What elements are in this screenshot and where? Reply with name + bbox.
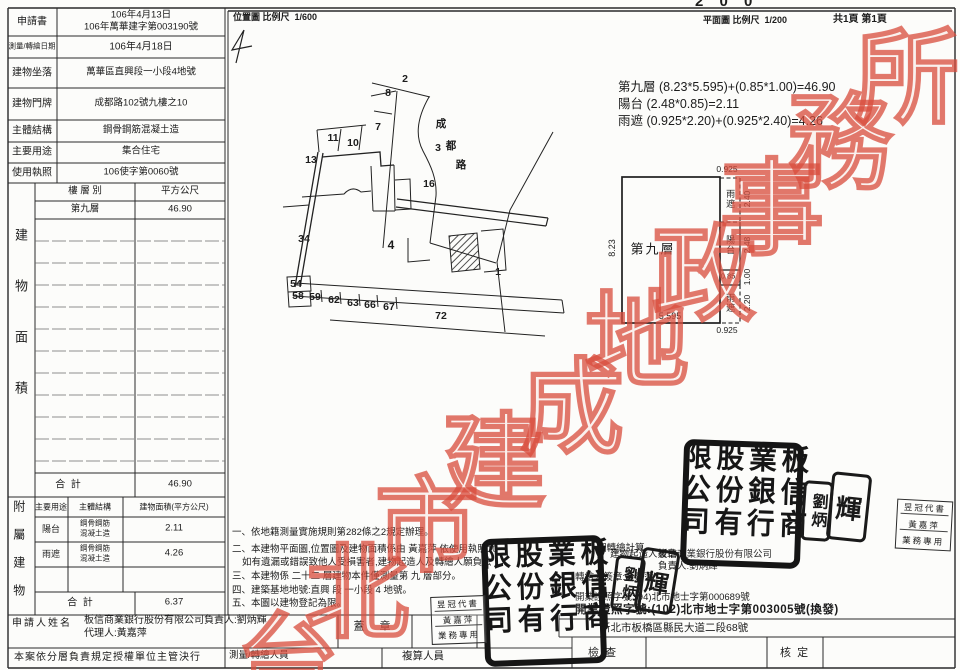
annex-balcony-structure-2: 混凝土造	[80, 530, 110, 539]
map-parcel-label: 2	[402, 73, 408, 85]
annex-canopy-structure-1: 鋼骨鋼筋	[80, 545, 110, 554]
dim-bottom-5595: 5.595	[659, 311, 682, 321]
note-5: 五、本圖以建物登記為限。	[232, 599, 346, 610]
field-label-survey-date: 測量/轉繪日期	[8, 43, 55, 52]
agent-stamp-row3: 業務專用	[899, 535, 947, 548]
applicant-label: 申請人姓名	[12, 618, 72, 630]
floor-9-area: 46.90	[168, 205, 192, 216]
note-3: 三、本建物係 二十二 層建物本件僅測量第 九 層部分。	[232, 572, 461, 583]
use-license: 106使字第0060號	[104, 168, 179, 179]
dim-top-0925: 0.925	[716, 165, 737, 175]
annex-section-side-label: 附屬建物	[11, 500, 25, 612]
field-label-address: 建物門牌	[12, 98, 52, 110]
map-parcel-label: 16	[423, 178, 435, 190]
note-2a: 二、本建物平面圖,位置圖及建物面積係由 黃嘉萍 依使用執照10	[232, 545, 498, 556]
location-map-lines	[232, 30, 564, 336]
map-parcel-label: 7	[375, 121, 381, 133]
canopy-bot-label: 雨遮	[725, 293, 735, 313]
personal-seal-2b: 輝	[826, 471, 873, 543]
authority-statement: 本案依分層負責規定授權單位主管決行	[14, 652, 201, 664]
watermark-char: 成	[520, 323, 624, 474]
field-label-license: 使用執照	[12, 167, 52, 179]
note-4: 四、建築基地地號:直興 段 一小段 4 地號。	[232, 586, 412, 597]
map-parcel-label: 8	[385, 87, 391, 99]
applicant-line2: 代理人:黃嘉萍	[84, 628, 147, 640]
field-label-application: 申請書	[17, 16, 47, 28]
watermark-char: 市	[375, 441, 479, 592]
annex-balcony-area: 2.11	[165, 524, 183, 535]
area-section-side-label: 建物面積	[12, 228, 27, 432]
watermark-char: 事	[720, 124, 824, 275]
annex-col-use: 主要用途	[35, 502, 67, 511]
map-parcel-label: 4	[388, 239, 395, 253]
annex-col-area: 建物面積(平方公尺)	[139, 502, 208, 511]
canopy-bot-dim: 2.20	[743, 295, 753, 312]
floor-plan-title: 平面圖 比例尺 1/200	[703, 15, 787, 25]
annex-balcony: 陽台	[42, 524, 60, 534]
application-date: 106年4月13日	[111, 11, 171, 22]
annex-col-structure: 主體結構	[79, 502, 111, 511]
map-parcel-label: 58	[292, 290, 304, 302]
annex-balcony-structure-1: 鋼骨鋼筋	[80, 520, 110, 529]
office-address: 新北市板橋區縣民大道二段68號	[600, 622, 748, 634]
col-floor: 樓 層 別	[68, 187, 102, 198]
surveyor-label: 測量/轉繪人員	[229, 651, 289, 662]
annex-total-label: 合 計	[67, 597, 93, 609]
map-parcel-label: 都	[446, 140, 457, 152]
applicant-line1: 板信商業銀行股份有限公司負責人:劉炳輝	[84, 615, 267, 627]
dim-085: 0.85	[721, 273, 736, 282]
agent-stamp-row3: 業務專用	[435, 630, 482, 642]
agent-stamp-row2: 黃嘉萍	[435, 614, 482, 627]
map-parcel-label: 72	[435, 310, 447, 322]
map-parcel-label: 10	[347, 137, 359, 149]
calc-balcony: 陽台 (2.48*0.85)=2.11	[618, 97, 739, 111]
field-label-location: 建物坐落	[12, 67, 52, 79]
survey-document-page: 2 0 0 位置圖 比例尺 1/600 平面圖 比例尺 1/200 共1頁 第1…	[0, 0, 960, 670]
canopy-top-dim: 2.40	[743, 191, 753, 208]
map-parcel-label: 成	[436, 118, 447, 130]
agent-stamp-row1: 昱冠代書	[434, 598, 481, 611]
main-structure: 鋼骨鋼筋混凝土造	[103, 126, 179, 137]
location-map-title: 位置圖 比例尺 1/600	[233, 12, 317, 22]
main-use: 集合住宅	[122, 147, 160, 158]
map-parcel-label: 59	[309, 291, 321, 303]
approve-label: 核 定	[780, 647, 808, 660]
floor-9-label: 第九層	[71, 205, 100, 216]
map-parcel-label: 62	[328, 294, 340, 306]
agent-stamp-row1: 昱冠代書	[901, 502, 950, 516]
building-address: 成都路102號九樓之10	[95, 99, 188, 110]
map-parcel-label: 1	[495, 266, 501, 278]
canopy-top-label: 雨遮	[725, 189, 735, 209]
balcony-label: 陽台	[725, 235, 735, 255]
page-info: 共1頁 第1頁	[833, 14, 887, 26]
application-number: 106年萬華建字第003190號	[84, 23, 198, 34]
survey-date: 106年4月18日	[109, 41, 172, 53]
map-parcel-label: 3	[435, 142, 441, 154]
dim-100: 1.00	[743, 269, 753, 286]
top-partial-mark: 2 0 0	[695, 0, 758, 10]
watermark-char: 建	[442, 378, 546, 529]
map-parcel-label: 11	[327, 132, 338, 144]
watermark-char: 地	[585, 256, 689, 407]
agent-stamp-2: 昱冠代書 黃嘉萍 業務專用	[895, 499, 954, 552]
calc-canopy: 雨遮 (0.925*2.20)+(0.925*2.40)=4.26	[618, 114, 823, 128]
field-label-structure: 主體結構	[12, 125, 52, 137]
company-seal-1: 板信商業銀行股份有限公司	[481, 535, 607, 667]
dim-left-823: 8.23	[607, 239, 617, 257]
col-sqm: 平方公尺	[161, 187, 199, 198]
map-parcel-label: 67	[383, 301, 395, 313]
annex-canopy-area: 4.26	[165, 549, 184, 560]
calc-floor9: 第九層 (8.23*5.595)+(0.85*1.00)=46.90	[618, 80, 836, 94]
dim-bot-0925: 0.925	[716, 326, 737, 336]
agent-stamp-row2: 黃嘉萍	[900, 518, 949, 532]
floor-plan-room-label: 第九層	[630, 243, 675, 258]
map-parcel-label: 54	[290, 278, 302, 290]
seal-cell-label: 蓋 章	[353, 621, 396, 634]
company-seal-2: 板信商業銀行股份有限公司	[680, 439, 804, 569]
balcony-dim: 2.48	[743, 237, 753, 254]
subject-building-hatch	[449, 233, 480, 272]
annex-canopy: 雨遮	[42, 549, 60, 559]
area-total-label: 合 計	[55, 479, 81, 491]
area-total: 46.90	[168, 480, 192, 491]
map-parcel-label: 13	[305, 154, 317, 166]
agent-stamp-1: 昱冠代書 黃嘉萍 業務專用	[430, 595, 487, 645]
map-parcel-label: 63	[347, 297, 359, 309]
annex-total: 6.37	[165, 598, 184, 609]
note-1: 一、依地籍測量實施規則第282條之2規定辦理。	[232, 528, 434, 539]
checker-label: 複算人員	[402, 650, 444, 662]
field-label-use: 主要用途	[12, 146, 52, 158]
building-location: 萬華區直興段一小段4地號	[86, 68, 196, 79]
map-parcel-label: 路	[456, 159, 467, 171]
note-2b: 如有遺漏或錯誤致他人受損害者,建物起造人及轉繪人願負法	[242, 558, 492, 569]
map-parcel-label: 34	[298, 233, 310, 245]
annex-canopy-structure-2: 混凝土造	[80, 555, 110, 564]
map-parcel-label: 66	[364, 299, 376, 311]
